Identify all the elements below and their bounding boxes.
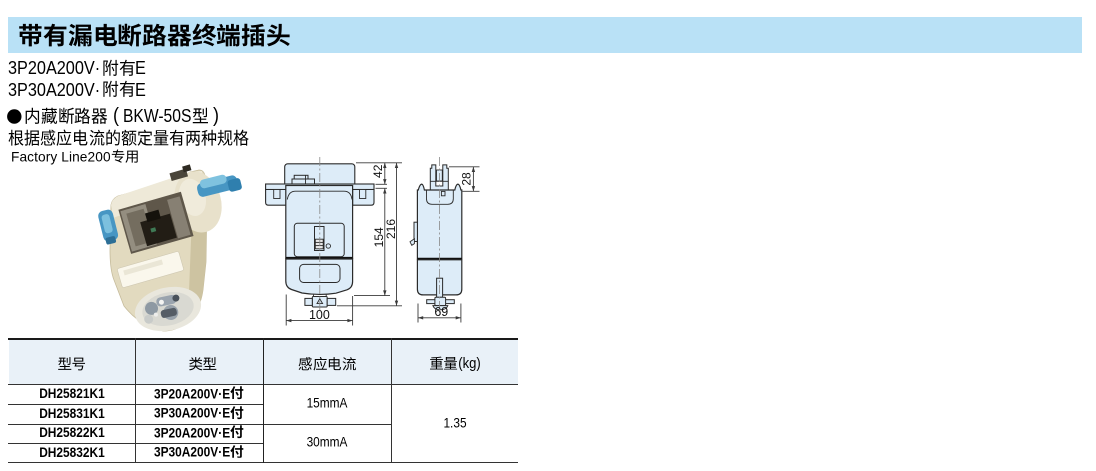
svg-text:100: 100 (309, 308, 330, 322)
svg-text:42: 42 (371, 164, 385, 178)
svg-text:28: 28 (460, 172, 474, 186)
svg-text:69: 69 (434, 305, 448, 319)
svg-text:216: 216 (384, 219, 398, 239)
